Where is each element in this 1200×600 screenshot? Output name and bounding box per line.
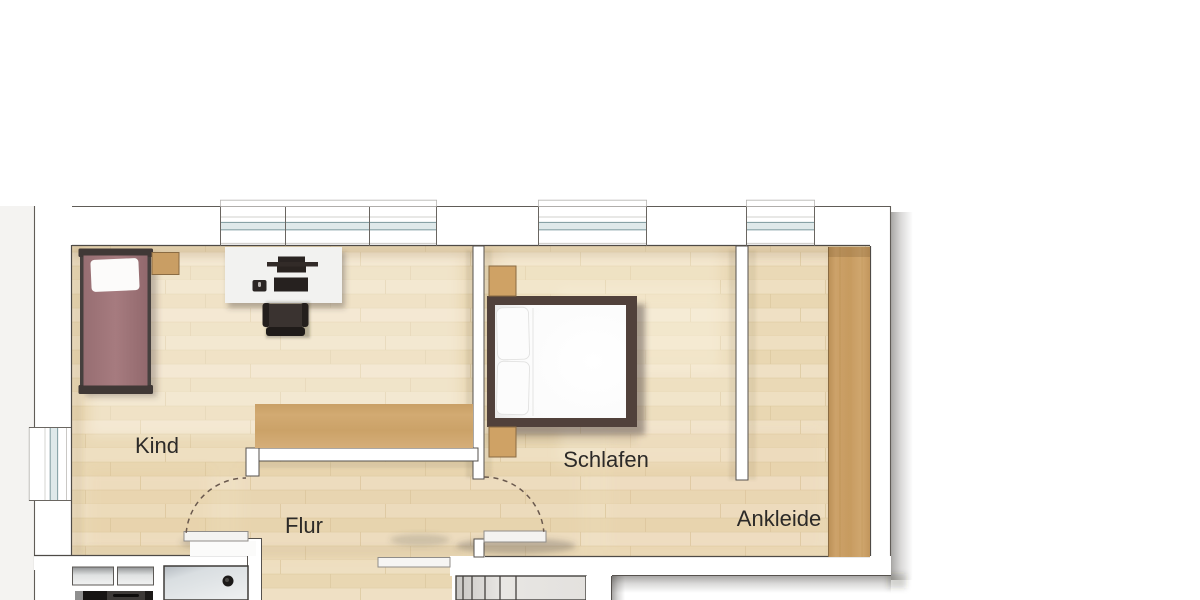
svg-text:Schlafen: Schlafen bbox=[563, 447, 649, 472]
svg-text:Flur: Flur bbox=[285, 513, 323, 538]
svg-text:Kind: Kind bbox=[135, 433, 179, 458]
svg-text:Ankleide: Ankleide bbox=[737, 506, 821, 531]
